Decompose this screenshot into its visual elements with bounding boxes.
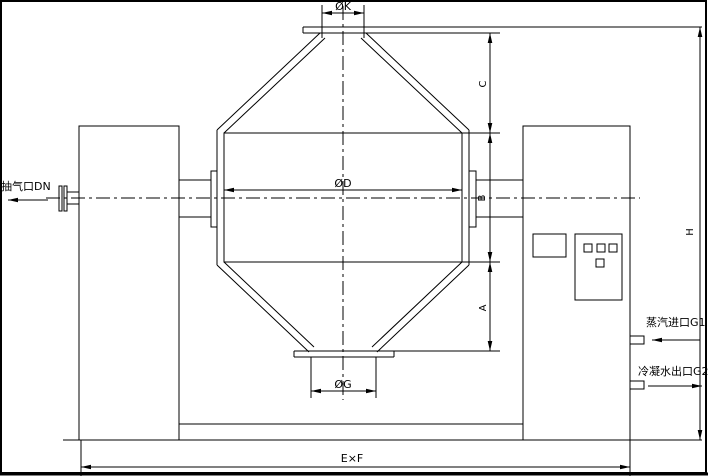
centerlines (46, 6, 640, 400)
total-height-label: H (685, 228, 696, 236)
control-panel (533, 234, 622, 300)
vacuum-port-label: 抽气口DN (1, 179, 51, 193)
cone-top-height-label: C (478, 80, 489, 87)
vessel-dia-label: ØD (334, 177, 351, 190)
steam-nozzle (630, 336, 644, 344)
engineering-drawing: ØK ØD ØG C B A H E×F 抽气口DN 蒸汽进口G1 冷凝水出口G… (0, 0, 708, 476)
panel-button-1 (584, 244, 592, 252)
steam-inlet-label: 蒸汽进口G1 (646, 315, 706, 329)
condensate-outlet-label: 冷凝水出口G2 (638, 364, 708, 378)
bearing-cover-box (533, 234, 566, 257)
base-frame (63, 424, 702, 440)
panel-button-4 (596, 259, 604, 267)
bottom-flange (294, 351, 500, 357)
left-trunnion (179, 171, 217, 227)
cylinder-height-label: B (477, 194, 488, 201)
dimension-lines (8, 13, 702, 467)
panel-button-2 (597, 244, 605, 252)
drawing-svg: ØK ØD ØG C B A H E×F 抽气口DN 蒸汽进口G1 冷凝水出口G… (0, 0, 708, 476)
drawing-labels: ØK ØD ØG C B A H E×F 抽气口DN 蒸汽进口G1 冷凝水出口G… (1, 0, 708, 465)
bottom-port-dia-label: ØG (334, 378, 351, 391)
cone-bottom-height-label: A (478, 304, 489, 311)
right-stand (523, 126, 630, 440)
extension-lines (81, 5, 630, 476)
top-flange (303, 27, 702, 33)
sheet-border (0, 1, 708, 474)
top-port-dia-label: ØK (335, 0, 352, 13)
condensate-nozzle (630, 381, 644, 389)
base-size-label: E×F (341, 452, 364, 465)
panel-button-3 (609, 244, 617, 252)
left-stand (79, 126, 179, 440)
